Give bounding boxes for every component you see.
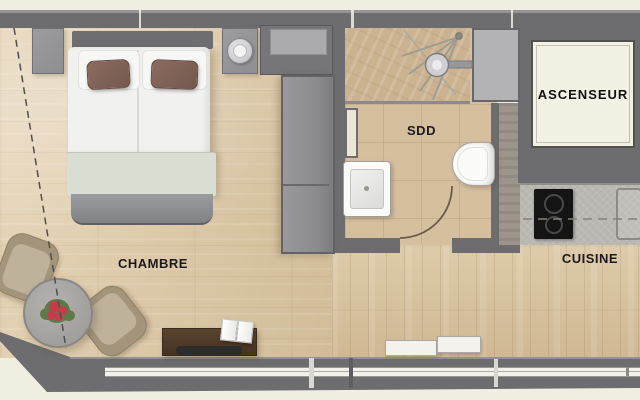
window-mullion	[349, 358, 353, 388]
wall-bottom-edge	[70, 357, 640, 359]
bed-blanket	[67, 152, 216, 196]
nightstand-left	[32, 28, 64, 74]
book-page	[236, 320, 254, 344]
pillow-accent-right	[151, 59, 199, 90]
washbasin-drain	[364, 186, 369, 191]
shower-room-label: SDD	[394, 123, 449, 138]
window-divider	[626, 367, 629, 376]
wall-seam	[139, 10, 141, 28]
cooktop-burner	[544, 194, 564, 214]
window-glazing-line	[105, 371, 640, 372]
bathroom-wall-bottom-left	[332, 238, 400, 253]
wall-seam	[511, 10, 513, 28]
pillow-accent-left	[86, 59, 130, 90]
kitchen-label: CUISINE	[545, 251, 635, 266]
window-frame-seam	[309, 358, 314, 388]
elevator-cab-frame	[536, 45, 630, 143]
tray	[176, 346, 242, 355]
toilet-lid-line	[457, 147, 488, 181]
flower-bloom-icon	[55, 313, 63, 321]
table-lamp-shade	[233, 44, 247, 58]
open-book-icon	[220, 318, 254, 343]
floor-plan: ASCENSEUR	[0, 0, 640, 400]
window-strip	[105, 367, 640, 377]
wardrobe-divider	[283, 184, 329, 186]
radiator	[385, 340, 437, 356]
wall-seam	[351, 10, 354, 28]
wardrobe	[281, 75, 335, 254]
shower-edge-line	[345, 101, 470, 104]
wall-cabinet-panel	[270, 29, 327, 55]
towel-rail	[345, 108, 358, 158]
bed-footboard	[71, 194, 213, 225]
window-frame-seam	[494, 359, 498, 387]
bedroom-label: CHAMBRE	[103, 256, 203, 271]
cooktop-burner	[545, 216, 563, 234]
kitchen-sink	[616, 188, 640, 240]
radiator	[437, 336, 481, 353]
shower-floor	[345, 28, 470, 102]
shower-enclosure-panel	[472, 28, 520, 102]
